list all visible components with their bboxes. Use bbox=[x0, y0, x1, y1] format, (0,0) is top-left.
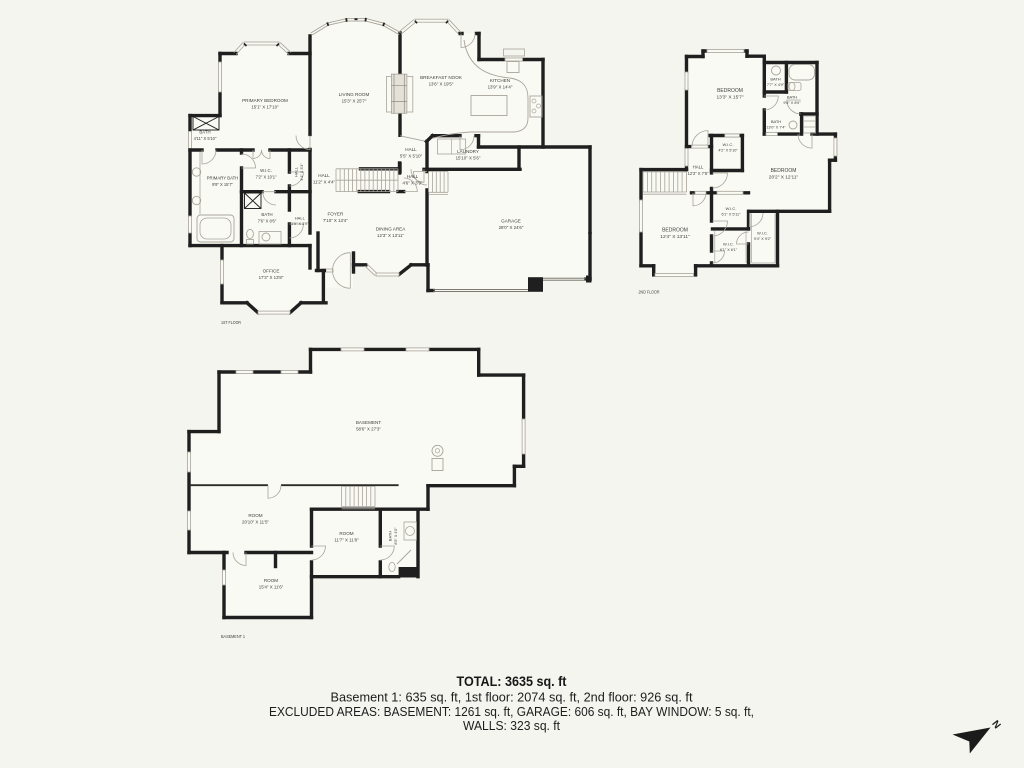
svg-text:BATH: BATH bbox=[199, 130, 210, 135]
svg-text:5'5" X 5'10": 5'5" X 5'10" bbox=[400, 153, 423, 158]
svg-text:HALL: HALL bbox=[294, 166, 299, 177]
svg-text:BEDROOM: BEDROOM bbox=[717, 88, 743, 94]
svg-text:KITCHEN: KITCHEN bbox=[490, 78, 510, 83]
svg-text:LAUNDRY: LAUNDRY bbox=[457, 149, 479, 154]
svg-text:BREAKFAST NOOK: BREAKFAST NOOK bbox=[420, 75, 463, 80]
svg-text:15'1" X 17'10": 15'1" X 17'10" bbox=[251, 104, 279, 109]
svg-text:BATH: BATH bbox=[770, 77, 780, 82]
svg-text:7'2" X 10'1": 7'2" X 10'1" bbox=[256, 174, 277, 179]
svg-text:11'7" X 11'8": 11'7" X 11'8" bbox=[334, 537, 359, 542]
svg-text:BEDROOM: BEDROOM bbox=[662, 228, 688, 234]
svg-text:ROOM: ROOM bbox=[264, 578, 278, 583]
svg-text:15'10" X 5'6": 15'10" X 5'6" bbox=[456, 155, 481, 160]
svg-text:9'9" X 15'7": 9'9" X 15'7" bbox=[212, 182, 233, 187]
svg-text:HALL: HALL bbox=[405, 147, 417, 152]
svg-text:13'0" X 7'4": 13'0" X 7'4" bbox=[766, 126, 786, 130]
svg-text:9'4" X 9'2": 9'4" X 9'2" bbox=[754, 237, 772, 241]
svg-text:13'3" X 15'7": 13'3" X 15'7" bbox=[716, 94, 743, 100]
svg-text:BATH: BATH bbox=[771, 119, 781, 124]
svg-text:7'10" X 13'4": 7'10" X 13'4" bbox=[323, 218, 348, 223]
svg-text:BEDROOM: BEDROOM bbox=[771, 168, 797, 174]
svg-text:W.I.C.: W.I.C. bbox=[726, 206, 737, 211]
svg-text:ROOM: ROOM bbox=[248, 513, 262, 518]
svg-text:2ND FLOOR: 2ND FLOOR bbox=[639, 290, 661, 295]
svg-text:13'9" X 14'4": 13'9" X 14'4" bbox=[488, 84, 513, 89]
svg-text:W.I.C.: W.I.C. bbox=[723, 242, 734, 247]
svg-text:BATH: BATH bbox=[261, 212, 272, 217]
svg-text:WALLS: 323 sq. ft: WALLS: 323 sq. ft bbox=[463, 718, 560, 733]
svg-text:7'7" X 4'9": 7'7" X 4'9" bbox=[767, 83, 785, 87]
svg-text:ROOM: ROOM bbox=[339, 531, 353, 536]
svg-text:6'1" X 6'1": 6'1" X 6'1" bbox=[720, 248, 738, 252]
svg-text:20'10" X 11'5": 20'10" X 11'5" bbox=[242, 519, 269, 524]
svg-text:OFFICE: OFFICE bbox=[263, 269, 280, 274]
svg-text:8'5" X 4'0": 8'5" X 4'0" bbox=[394, 527, 398, 545]
svg-text:FOYER: FOYER bbox=[327, 212, 344, 217]
svg-text:BATH: BATH bbox=[787, 95, 797, 100]
svg-text:11'2" X 4'4": 11'2" X 4'4" bbox=[313, 179, 335, 184]
svg-text:9'6" X 8'9": 9'6" X 8'9" bbox=[783, 101, 801, 105]
svg-text:20'2" X 12'11": 20'2" X 12'11" bbox=[769, 174, 799, 180]
svg-text:HALL: HALL bbox=[407, 174, 419, 179]
svg-text:PRIMARY BATH: PRIMARY BATH bbox=[207, 176, 239, 181]
svg-text:HALL: HALL bbox=[295, 216, 306, 221]
svg-text:W.I.C.: W.I.C. bbox=[260, 168, 272, 173]
svg-text:58'6" X 27'3": 58'6" X 27'3" bbox=[356, 426, 381, 431]
svg-text:15'3" X 25'7": 15'3" X 25'7" bbox=[342, 98, 367, 103]
svg-text:W.I.C.: W.I.C. bbox=[723, 142, 734, 147]
svg-text:GARAGE: GARAGE bbox=[501, 219, 521, 224]
svg-text:DINING AREA: DINING AREA bbox=[376, 227, 407, 232]
svg-text:LIVING ROOM: LIVING ROOM bbox=[339, 92, 370, 97]
svg-text:12'3" X 13'11": 12'3" X 13'11" bbox=[377, 233, 404, 238]
svg-text:12'3" X 7'8": 12'3" X 7'8" bbox=[688, 171, 709, 176]
svg-text:Basement 1: 635 sq. ft, 1st fl: Basement 1: 635 sq. ft, 1st floor: 2074 … bbox=[331, 690, 693, 705]
svg-text:BATH: BATH bbox=[388, 531, 393, 541]
svg-text:28'0" X 24'6": 28'0" X 24'6" bbox=[499, 225, 524, 230]
svg-text:BASEMENT: BASEMENT bbox=[356, 420, 381, 425]
svg-text:7'6" X 8'6": 7'6" X 8'6" bbox=[258, 218, 277, 223]
svg-text:TOTAL: 3635 sq. ft: TOTAL: 3635 sq. ft bbox=[457, 673, 567, 689]
svg-text:4'2" X 5'10": 4'2" X 5'10" bbox=[718, 149, 738, 153]
svg-text:15'4" X 11'6": 15'4" X 11'6" bbox=[259, 584, 284, 589]
svg-text:4'4" X 3'3": 4'4" X 3'3" bbox=[300, 163, 304, 181]
svg-text:4'11" X 5'10": 4'11" X 5'10" bbox=[194, 136, 217, 141]
svg-text:1'9" X 3'9": 1'9" X 3'9" bbox=[291, 222, 309, 226]
svg-text:12'4" X 13'11": 12'4" X 13'11" bbox=[660, 234, 690, 240]
svg-text:EXCLUDED AREAS: BASEMENT: 1261: EXCLUDED AREAS: BASEMENT: 1261 sq. ft, G… bbox=[269, 704, 754, 719]
svg-text:4'6" X 3'9": 4'6" X 3'9" bbox=[403, 180, 423, 185]
svg-text:1ST FLOOR: 1ST FLOOR bbox=[221, 320, 242, 325]
svg-text:W.I.C.: W.I.C. bbox=[757, 231, 768, 236]
svg-text:HALL: HALL bbox=[693, 165, 704, 170]
svg-text:PRIMARY BEDROOM: PRIMARY BEDROOM bbox=[242, 98, 288, 103]
svg-text:13'6" X 19'5": 13'6" X 19'5" bbox=[429, 81, 454, 86]
svg-text:HALL: HALL bbox=[318, 173, 330, 178]
svg-text:17'3" X 13'8": 17'3" X 13'8" bbox=[259, 275, 284, 280]
svg-text:BASEMENT 1: BASEMENT 1 bbox=[221, 634, 245, 639]
svg-text:6'1" X 5'11": 6'1" X 5'11" bbox=[721, 213, 741, 217]
